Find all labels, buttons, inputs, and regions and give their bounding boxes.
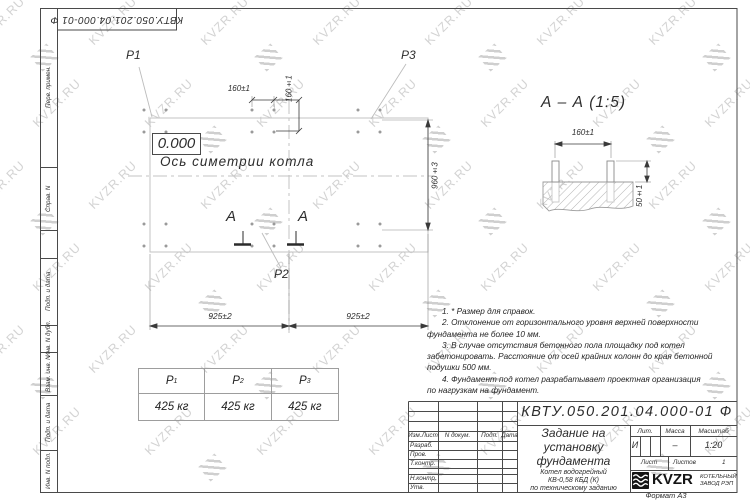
section-letter-left: А (226, 209, 236, 226)
kvzr-logo-text: KVZR (652, 471, 693, 488)
dim-plan-right: 925±2 (334, 312, 382, 321)
sig-row-nkontr: Н.контр. (410, 476, 437, 483)
note-line: 3. В случае отсутствия бетонного пола пл… (427, 340, 737, 351)
top-stamp: КВТУ.050.201.04.000-01 Ф (57, 8, 177, 30)
note-line: 4. Фундамент под котел разрабатывает про… (427, 374, 737, 385)
margin-label-podp-data-2: Подп. и дата (41, 395, 56, 450)
load-table-value: 425 кг (272, 394, 338, 420)
margin-label-sprav-n: Справ. N (41, 167, 56, 230)
top-stamp-doc-number: КВТУ.050.201.04.000-01 Ф (50, 14, 183, 25)
massa-value: – (660, 441, 690, 451)
load-table-header: P3 (272, 369, 338, 394)
col-header-doc: N докум. (438, 433, 477, 440)
note-line: 1. * Размер для справок. (427, 306, 737, 317)
margin-label-perv-primen: Перв. примен. (41, 8, 56, 167)
dim-bolt-horizontal: 160±1 (216, 85, 250, 94)
note-line: по нагрузкам на фундамент. (427, 385, 737, 396)
dim-plan-left: 925±2 (196, 312, 244, 321)
note-line: фундамента не более 10 мм. (427, 329, 737, 340)
sig-row-razrab: Разраб. (410, 443, 433, 450)
drawing-title-line: установку (517, 441, 630, 454)
load-point-p3-label: P3 (401, 49, 416, 62)
section-view-title: А – А (1:5) (541, 94, 626, 111)
sig-row-tkontr: Т.контр. (410, 461, 435, 468)
dim-section-protrusion: 50±1 (634, 183, 645, 209)
company-name-line: ЗАВОД РЭП (700, 481, 737, 488)
product-name-line: КВ-0,58 КБД (К) (517, 477, 630, 485)
dim-bolt-vertical: 160±1 (283, 74, 295, 104)
title-block-doc-number: КВТУ.050.201.04.000-01 Ф (517, 402, 737, 424)
sig-row-prov: Пров. (410, 452, 427, 459)
load-point-p1-label: P1 (126, 49, 141, 62)
drawing-title-line: Задание на (517, 427, 630, 440)
note-line: 2. Отклонение от горизонтального уровня … (427, 317, 737, 328)
lit-label: Лит. (630, 428, 660, 435)
listov-label: Листов (673, 460, 696, 467)
load-table: P1 P2 P3 425 кг 425 кг 425 кг (138, 368, 339, 421)
axis-label: Ось симетрии котла (160, 155, 314, 170)
product-name-line: Котел водогрейный (517, 469, 630, 477)
dim-plan-height: 960±3 (429, 157, 441, 195)
list-label: Лист (630, 460, 668, 467)
company-name-line: КОТЕЛЬНЫЙ (700, 474, 737, 481)
note-line: забетонировать. Расстояние от осей крайн… (427, 351, 737, 362)
margin-label-inv-podl: Инв. N подл. (41, 450, 56, 492)
margin-label-inv-dubl: Инв. N дубл. (41, 325, 56, 352)
level-mark: 0.000 (152, 133, 201, 155)
masshtab-label: Масштаб (690, 428, 737, 435)
kvzr-logo-icon (632, 472, 649, 489)
drawing-sheet: KVZR.RUKVZR.RUKVZR.RUKVZR.RUKVZR.RUKVZR.… (0, 0, 750, 500)
listov-value: 1 (722, 460, 726, 467)
sig-row-utv: Утв. (410, 485, 424, 492)
load-table-value: 425 кг (139, 394, 205, 420)
margin-label-vzam-inv: Взам. инв. N (41, 352, 56, 395)
load-table-header: P2 (205, 369, 271, 394)
col-header-izm: Изм.Лист (408, 433, 438, 440)
format-label: Формат А3 (596, 492, 736, 500)
col-header-data: Дата (502, 433, 517, 440)
notes-block: 1. * Размер для справок. 2. Отклонение о… (427, 306, 737, 396)
margin-label-podp-data-1: Подп. и дата (41, 258, 56, 325)
drawing-title-line: фундамента (517, 455, 630, 468)
col-header-podp: Подп. (477, 433, 502, 440)
note-line: подушки 500 мм. (427, 362, 737, 373)
lit-value: И (630, 441, 640, 451)
masshtab-value: 1:20 (690, 441, 737, 451)
load-point-p2-label: P2 (274, 268, 289, 281)
massa-label: Масса (660, 428, 690, 435)
load-table-header: P1 (139, 369, 205, 394)
dim-section-spacing: 160±1 (558, 129, 608, 138)
company-name: КОТЕЛЬНЫЙ ЗАВОД РЭП (700, 474, 737, 488)
section-letter-right: А (298, 209, 308, 226)
load-table-value: 425 кг (205, 394, 271, 420)
